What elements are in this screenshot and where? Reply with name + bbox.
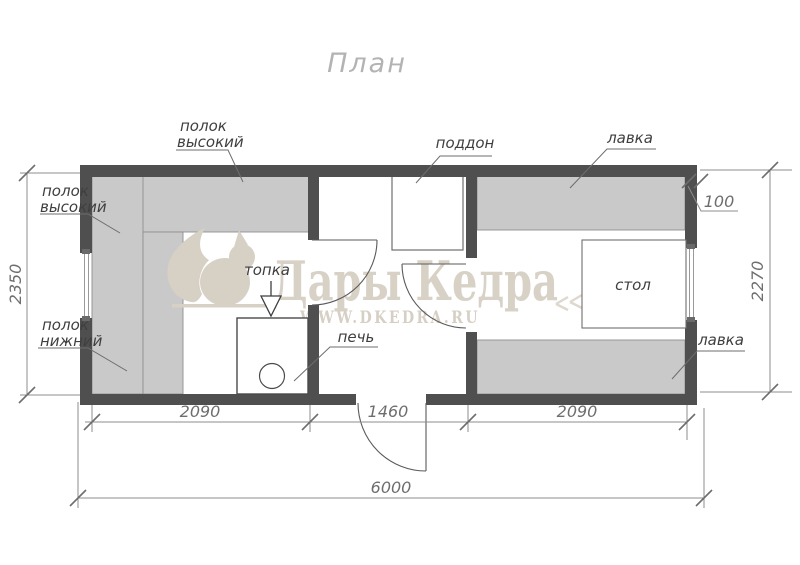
- label-bench-top: лавка: [606, 129, 653, 147]
- dim-text-2350: 2350: [6, 264, 25, 305]
- wall-right-upper-segment: [685, 165, 697, 248]
- label-shelf-high-left-line2: высокий: [40, 198, 107, 216]
- label-table: стол: [615, 276, 651, 294]
- dim-text-2270: 2270: [748, 261, 767, 302]
- floor-plan-drawing: Дары Кедра WWW.DKEDRA.RU: [0, 0, 800, 565]
- label-stove: печь: [338, 328, 375, 346]
- stove: [237, 318, 308, 394]
- label-firebox: топка: [244, 261, 290, 279]
- shower-pallet: [392, 176, 463, 250]
- bench-top: [477, 176, 685, 230]
- label-pallet: поддон: [436, 134, 495, 152]
- watermark: Дары Кедра WWW.DKEDRA.RU: [167, 228, 596, 328]
- window-right: [687, 244, 695, 322]
- dim-text-2090-left: 2090: [180, 402, 221, 421]
- dim-text-1460: 1460: [368, 402, 409, 421]
- floor-plan-page: Дары Кедра WWW.DKEDRA.RU: [0, 0, 800, 565]
- wall-top: [80, 165, 697, 177]
- window-left: [82, 249, 90, 321]
- bench-bottom: [477, 340, 685, 394]
- stove-chimney-circle: [260, 364, 285, 389]
- wall-washroom-restroom-lower: [466, 332, 477, 394]
- dim-text-100: 100: [704, 192, 735, 211]
- wall-sauna-washroom-lower: [308, 305, 319, 394]
- dim-text-2090-right: 2090: [557, 402, 598, 421]
- watermark-url-text: WWW.DKEDRA.RU: [299, 308, 480, 328]
- label-shelf-low-left-line2: нижний: [40, 332, 103, 350]
- wall-washroom-restroom-upper: [466, 176, 477, 258]
- page-title: План: [327, 48, 407, 79]
- label-shelf-high-top-line2: высокий: [177, 133, 244, 151]
- label-bench-bottom: лавка: [697, 331, 744, 349]
- dim-text-6000: 6000: [371, 478, 412, 497]
- wall-sauna-washroom-upper: [308, 176, 319, 240]
